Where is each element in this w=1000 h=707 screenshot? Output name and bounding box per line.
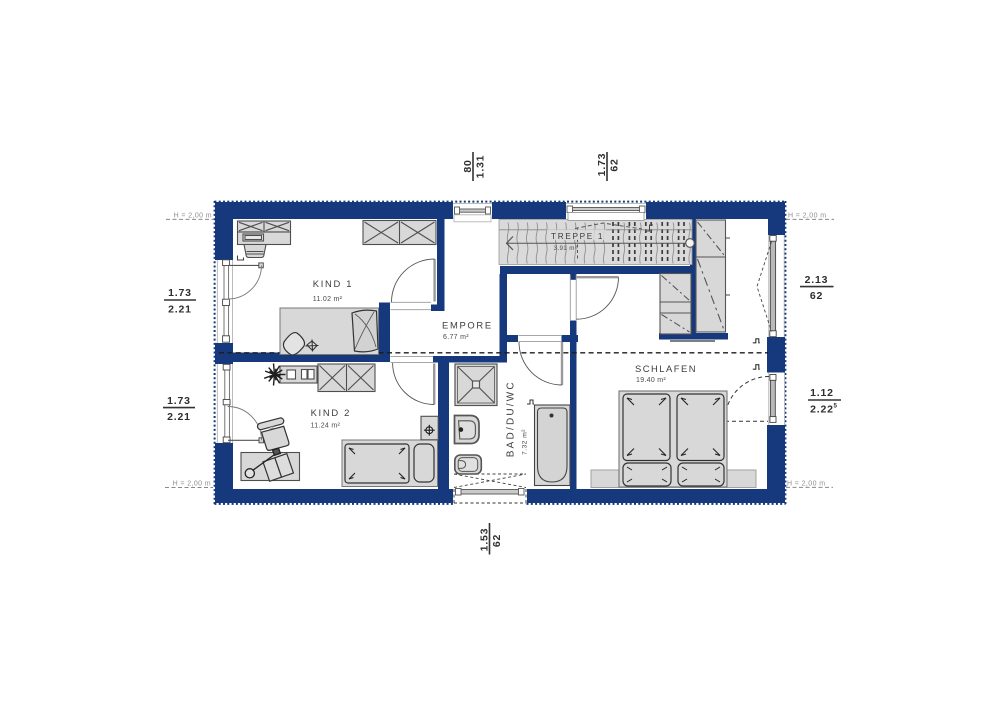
svg-text:19.40 m²: 19.40 m² — [636, 377, 666, 384]
svg-text:2.21: 2.21 — [168, 303, 192, 315]
svg-text:2.21: 2.21 — [167, 411, 191, 423]
svg-text:1.73: 1.73 — [168, 287, 192, 299]
svg-text:SCHLAFEN: SCHLAFEN — [635, 363, 697, 374]
svg-text:62: 62 — [609, 158, 621, 171]
svg-text:11.02 m²: 11.02 m² — [313, 296, 343, 303]
svg-text:KIND 1: KIND 1 — [313, 278, 353, 289]
svg-text:80: 80 — [462, 159, 474, 172]
svg-text:5: 5 — [834, 403, 838, 410]
svg-text:H = 2,00 m: H = 2,00 m — [788, 213, 826, 220]
svg-text:62: 62 — [810, 290, 823, 302]
svg-text:1.73: 1.73 — [167, 395, 191, 407]
svg-text:1.53: 1.53 — [479, 528, 491, 552]
svg-text:EMPORE: EMPORE — [442, 319, 493, 330]
svg-text:1.73: 1.73 — [596, 153, 608, 177]
svg-text:1.31: 1.31 — [475, 155, 487, 179]
svg-text:11.24 m²: 11.24 m² — [311, 423, 341, 430]
svg-text:62: 62 — [491, 534, 503, 547]
svg-text:H = 2,00 m: H = 2,00 m — [174, 213, 212, 220]
svg-text:2.13: 2.13 — [805, 274, 829, 286]
svg-text:7.32 m²: 7.32 m² — [522, 429, 529, 455]
svg-text:BAD/DU/WC: BAD/DU/WC — [506, 380, 517, 457]
svg-text:H = 2,00 m: H = 2,00 m — [173, 481, 211, 488]
svg-text:H = 2,00 m: H = 2,00 m — [787, 481, 825, 488]
svg-text:1.12: 1.12 — [810, 387, 834, 399]
svg-text:3.91 m²: 3.91 m² — [554, 245, 578, 252]
svg-text:6.77 m²: 6.77 m² — [443, 334, 469, 341]
svg-text:2.22: 2.22 — [810, 403, 834, 415]
svg-text:KIND 2: KIND 2 — [311, 407, 351, 418]
svg-text:TREPPE 1: TREPPE 1 — [551, 232, 604, 241]
